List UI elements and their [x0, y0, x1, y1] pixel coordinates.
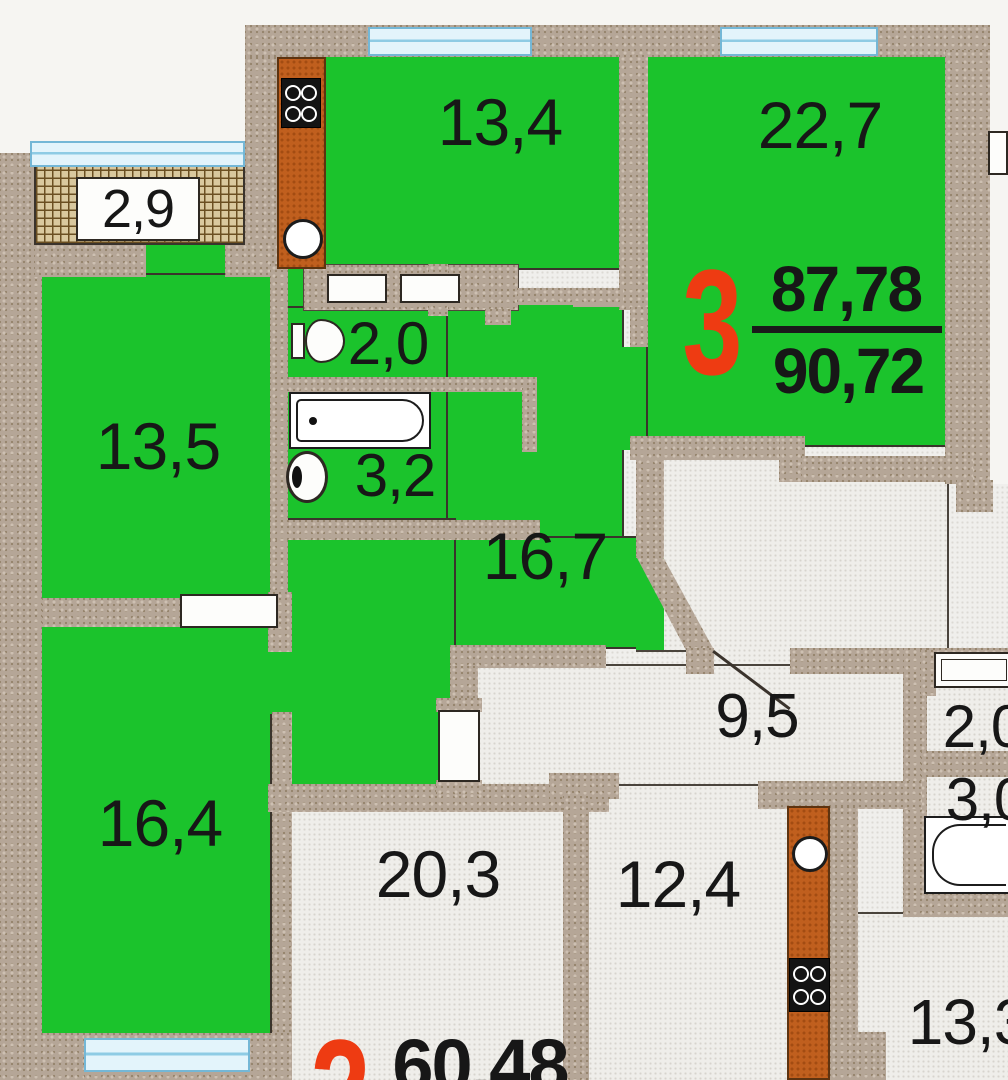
apartment3-number: 3	[682, 247, 741, 397]
window-side	[988, 131, 1008, 175]
wall	[619, 55, 648, 310]
door-opening-living	[620, 347, 650, 450]
sink-icon-2	[792, 836, 828, 872]
closet-icon	[934, 652, 1008, 688]
wall	[945, 50, 990, 484]
fraction-line	[752, 326, 942, 333]
wall	[903, 893, 1008, 917]
window-kitchen	[368, 27, 532, 56]
closet-inner	[941, 659, 1007, 681]
kitchen-passage	[288, 262, 303, 314]
stove-icon	[281, 78, 321, 128]
label-room-12-4: 12,4	[616, 851, 740, 917]
label-living: 22,7	[758, 92, 882, 158]
door-jamb	[436, 780, 482, 794]
toilet-tank-icon	[291, 323, 305, 359]
wall	[246, 1033, 292, 1080]
wall	[801, 456, 973, 482]
outside-right	[990, 133, 1008, 484]
wall	[636, 450, 664, 558]
wall	[270, 264, 288, 602]
wardrobe-door	[400, 274, 460, 303]
wall	[630, 307, 648, 347]
apartment2-area: 60,48	[392, 1029, 567, 1080]
wall	[485, 309, 511, 325]
bathtub-icon	[289, 392, 431, 449]
wall-outer-left	[0, 153, 42, 1080]
wall	[34, 243, 146, 277]
label-bath-2: 3,0	[946, 770, 1008, 830]
label-bedroom: 13,5	[96, 413, 220, 479]
label-kitchen: 13,4	[438, 89, 562, 155]
apartment3-area-lower: 90,72	[773, 339, 923, 403]
balcony-glazing	[30, 141, 245, 167]
label-balcony: 2,9	[102, 182, 174, 236]
label-hall: 16,7	[483, 523, 607, 589]
wall	[956, 480, 993, 512]
wall	[758, 781, 922, 809]
wall	[686, 648, 714, 674]
hall-lower	[272, 520, 454, 786]
label-wc: 2,0	[348, 314, 428, 374]
apartment2-number: 2	[310, 1017, 369, 1080]
wall	[42, 598, 182, 627]
wall	[245, 25, 990, 57]
wall	[272, 712, 292, 1080]
wall	[830, 1032, 886, 1080]
floor-plan: 2,9 13,4 22,7 2,0 3,2 13,5 16,7 16,4 9,5…	[0, 0, 1008, 1080]
outside-top	[245, 0, 1008, 25]
label-wc-2: 2,0	[943, 697, 1008, 757]
window-bedroom2	[84, 1038, 250, 1072]
label-room-13-3: 13,3	[908, 990, 1008, 1054]
wall	[270, 377, 537, 392]
wall	[517, 288, 623, 305]
entrance-door-apt3	[438, 710, 480, 782]
door-opening-16-4	[266, 652, 294, 714]
balcony-door-opening	[142, 243, 227, 279]
apartment3-area-upper: 87,78	[771, 257, 921, 321]
wall	[450, 645, 606, 668]
wall	[630, 436, 785, 460]
label-bath: 3,2	[355, 446, 435, 506]
stove-icon-2	[789, 958, 830, 1012]
sink-icon	[283, 219, 323, 259]
label-corridor2: 9,5	[715, 686, 798, 748]
label-bedroom2: 16,4	[98, 790, 222, 856]
outside-top-left	[0, 0, 245, 155]
washbasin-dot	[292, 466, 302, 488]
wardrobe-door	[327, 274, 387, 303]
corridor-9-5	[477, 666, 927, 786]
window-living	[720, 27, 878, 56]
label-room-20-3: 20,3	[376, 841, 500, 907]
wall	[0, 1033, 90, 1080]
wall	[522, 388, 537, 452]
door-leaf-13-5	[180, 594, 278, 628]
room-12-4	[588, 786, 789, 1080]
